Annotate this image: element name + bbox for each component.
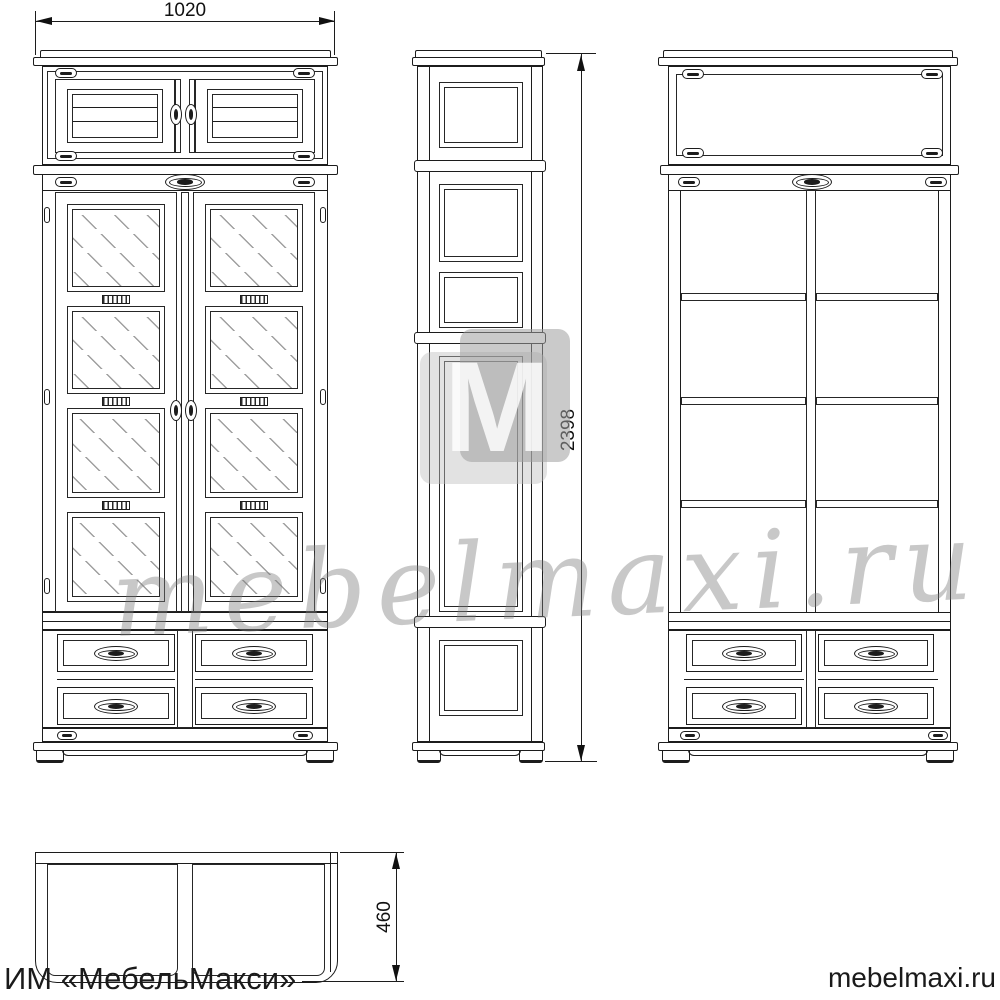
shelf-edge — [102, 295, 130, 304]
dim-arrow-up — [392, 853, 400, 869]
hinge — [682, 69, 704, 79]
dim-line — [581, 54, 582, 762]
side-panel — [439, 184, 523, 262]
edge-hinge — [44, 578, 50, 594]
side-molding — [414, 332, 546, 344]
screw-plate — [293, 731, 313, 740]
side-molding — [414, 616, 546, 628]
side-panel — [439, 356, 523, 612]
stile-line — [938, 190, 939, 628]
glass-pane — [205, 512, 303, 602]
site-url: mebelmaxi.ru — [788, 962, 996, 994]
edge-hinge — [44, 207, 50, 223]
screw-plate — [57, 731, 77, 740]
screw-plate — [928, 731, 948, 740]
footer-brand: ИМ «МебельМакси» — [4, 961, 296, 997]
edge-hinge — [320, 389, 326, 405]
rail-line — [669, 621, 950, 622]
furniture-blueprint: M 1020 — [0, 0, 1000, 1000]
drawer-handle — [854, 646, 898, 661]
edge-hinge — [44, 389, 50, 405]
ext-line — [302, 981, 404, 982]
hinge — [55, 177, 77, 187]
center-divider — [806, 190, 816, 628]
shelf-edge — [102, 397, 130, 406]
drawer-handle — [232, 699, 276, 714]
compartment — [47, 864, 178, 976]
ornament-medallion — [165, 174, 205, 190]
bracket-foot — [306, 750, 334, 763]
shelf — [681, 293, 806, 301]
stile-line — [680, 190, 681, 628]
bottom-rail — [42, 728, 328, 742]
side-panel — [439, 272, 523, 328]
apron — [62, 750, 308, 756]
glass-pane — [205, 408, 303, 498]
side-panel — [439, 640, 523, 716]
hinge — [925, 177, 947, 187]
shelf-edge — [240, 501, 268, 510]
rail-line — [818, 679, 938, 680]
center-stile — [177, 630, 193, 728]
drawer-handle — [232, 646, 276, 661]
door-knob — [185, 400, 197, 421]
hinge — [293, 151, 315, 161]
drawer-handle — [94, 646, 138, 661]
compartment — [192, 864, 325, 976]
glass-pane — [67, 204, 165, 292]
panel-line — [73, 107, 157, 108]
glass-pane — [67, 306, 165, 394]
shelf-edge — [102, 501, 130, 510]
hinge — [678, 177, 700, 187]
rail-line — [43, 621, 327, 622]
rail-line — [684, 679, 804, 680]
door-panel — [207, 89, 303, 143]
bracket-foot — [36, 750, 64, 763]
ext-line — [545, 761, 597, 762]
dim-label-height: 2398 — [559, 385, 579, 475]
drawer-handle — [854, 699, 898, 714]
dim-arrow-up — [577, 55, 585, 71]
ext-line — [546, 53, 596, 54]
shelf — [681, 500, 806, 508]
shelf-edge — [240, 295, 268, 304]
dim-line — [36, 21, 334, 22]
dim-label-width: 1020 — [135, 1, 235, 21]
apron — [439, 750, 521, 756]
center-divider — [806, 630, 816, 728]
door-knob — [170, 104, 182, 125]
shelf — [816, 397, 938, 405]
shelf — [681, 397, 806, 405]
hinge — [921, 148, 943, 158]
bracket-foot — [926, 750, 954, 763]
drawer-handle — [722, 699, 766, 714]
side-edge-line — [330, 853, 331, 972]
rail-line — [43, 190, 327, 191]
edge-hinge — [320, 578, 326, 594]
cornice-base — [658, 57, 958, 66]
door-knob — [185, 104, 197, 125]
dim-arrow-right — [319, 17, 335, 25]
shelf-edge — [240, 397, 268, 406]
top-opening — [676, 74, 943, 156]
hinge — [293, 68, 315, 78]
shelf — [816, 500, 938, 508]
side-panel — [439, 82, 523, 148]
panel-line — [213, 121, 297, 122]
dim-arrow-down — [392, 965, 400, 981]
cornice-base — [412, 57, 545, 66]
edge-hinge — [320, 207, 326, 223]
hinge — [293, 177, 315, 187]
panel-line — [213, 107, 297, 108]
dim-arrow-down — [577, 745, 585, 761]
panel-line — [73, 121, 157, 122]
screw-plate — [680, 731, 700, 740]
glass-pane — [205, 204, 303, 292]
drawer-handle — [94, 699, 138, 714]
side-molding — [414, 160, 546, 172]
bracket-foot — [519, 750, 543, 763]
ornament-medallion — [792, 174, 832, 190]
bracket-foot — [417, 750, 441, 763]
glass-pane — [205, 306, 303, 394]
bracket-foot — [662, 750, 690, 763]
rail-line — [57, 679, 175, 680]
shelf — [816, 293, 938, 301]
hinge — [921, 69, 943, 79]
drawer-handle — [722, 646, 766, 661]
dim-label-depth: 460 — [375, 882, 395, 952]
dim-line — [396, 853, 397, 981]
rail-line — [195, 679, 313, 680]
cornice-base — [33, 57, 338, 66]
hinge — [55, 151, 77, 161]
bottom-rail — [668, 728, 951, 742]
glass-pane — [67, 408, 165, 498]
dim-arrow-left — [36, 17, 52, 25]
apron — [688, 750, 928, 756]
hinge — [55, 68, 77, 78]
glass-pane — [67, 512, 165, 602]
hinge — [682, 148, 704, 158]
door-panel — [67, 89, 163, 143]
door-knob — [170, 400, 182, 421]
